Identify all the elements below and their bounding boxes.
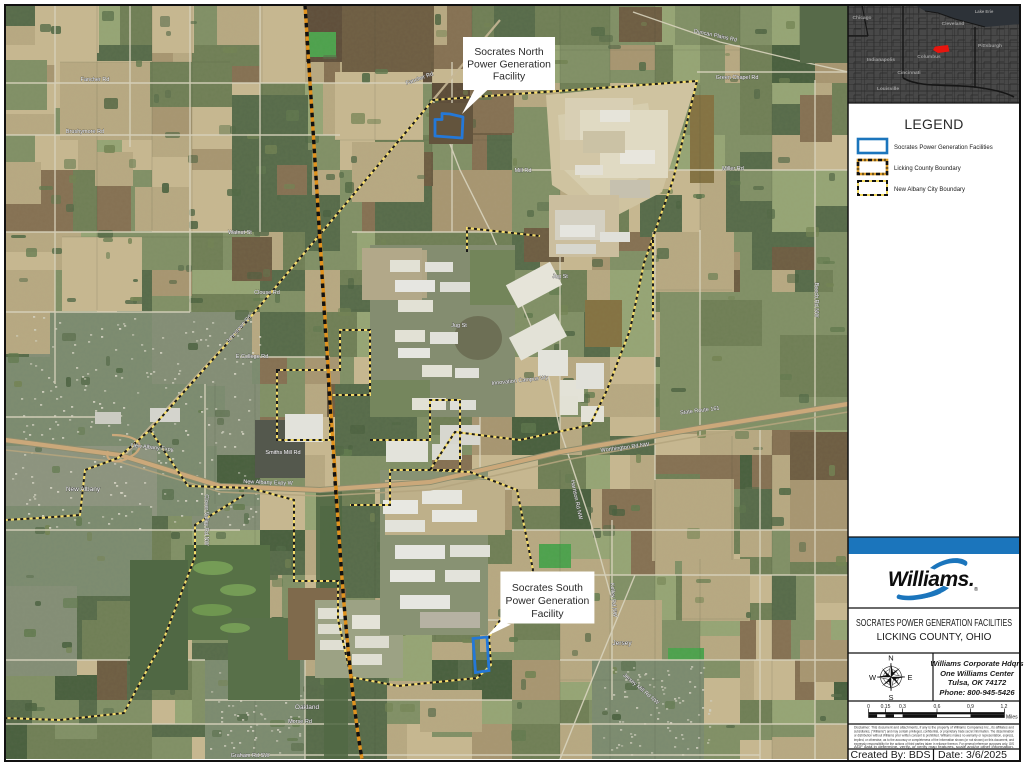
svg-text:E: E [907,673,912,682]
svg-text:Beech Rd NW: Beech Rd NW [813,283,819,319]
svg-text:Smiths Mill Rd: Smiths Mill Rd [265,450,300,456]
svg-text:Chicago: Chicago [853,15,872,21]
svg-text:Pittsburgh: Pittsburgh [978,43,1002,49]
svg-text:Facility: Facility [531,609,564,620]
svg-text:Licking County Boundary: Licking County Boundary [894,166,961,172]
svg-text:N: N [888,654,893,663]
svg-text:Morse Rd: Morse Rd [288,719,312,725]
svg-text:Lake Erie: Lake Erie [975,9,994,14]
svg-text:New Albany: New Albany [66,486,101,493]
svg-text:E College Rd: E College Rd [236,354,268,360]
svg-text:Graham Rd SW: Graham Rd SW [231,753,271,759]
svg-text:Clouse Rd: Clouse Rd [254,290,280,296]
svg-text:Miles: Miles [1006,715,1018,721]
svg-text:Socrates North: Socrates North [474,47,544,58]
svg-text:Williams Corporate Hdqrs: Williams Corporate Hdqrs [930,659,1023,668]
svg-text:Jug St: Jug St [451,323,467,329]
svg-text:Facility: Facility [493,72,526,83]
svg-text:LICKING COUNTY, OHIO: LICKING COUNTY, OHIO [877,632,992,643]
svg-text:Brushymore Rd: Brushymore Rd [66,129,104,135]
svg-text:Clover Valley Rd NW: Clover Valley Rd NW [203,494,209,546]
svg-text:W: W [869,673,877,682]
svg-text:Jersey: Jersey [612,640,632,647]
svg-text:Miller Rd: Miller Rd [722,166,744,172]
svg-text:LEGEND: LEGEND [904,116,963,132]
svg-text:Power Generation: Power Generation [467,59,551,70]
svg-text:®: ® [974,586,978,593]
svg-text:SOCRATES POWER GENERATION FACI: SOCRATES POWER GENERATION FACILITIES [856,618,1012,629]
svg-text:Jug St: Jug St [552,274,568,280]
svg-text:One Williams Center: One Williams Center [940,669,1015,678]
svg-text:New Albany City Boundary: New Albany City Boundary [894,187,965,193]
svg-text:Created By: BDS: Created By: BDS [851,749,931,761]
svg-text:Fancher Rd: Fancher Rd [81,77,110,83]
svg-text:Phone: 800-945-5426: Phone: 800-945-5426 [939,688,1015,697]
svg-text:Socrates South: Socrates South [512,583,583,594]
svg-text:Date: 3/6/2025: Date: 3/6/2025 [938,749,1007,761]
svg-text:Indianapolis: Indianapolis [867,57,895,63]
svg-text:Power Generation: Power Generation [506,596,590,607]
svg-text:Cincinnati: Cincinnati [897,70,920,76]
svg-text:Tulsa, OK 74172: Tulsa, OK 74172 [948,678,1007,687]
svg-text:Cleveland: Cleveland [942,21,965,27]
svg-text:Columbus: Columbus [917,54,941,60]
svg-text:Oakland: Oakland [295,704,320,711]
svg-text:Walnut St: Walnut St [228,230,252,236]
svg-text:Socrates Power Generation Faci: Socrates Power Generation Facilities [894,145,993,151]
svg-text:Mill Rd: Mill Rd [515,168,532,174]
svg-text:Green Chapel Rd: Green Chapel Rd [716,75,759,81]
svg-text:Williams.: Williams. [888,568,974,591]
svg-text:Louisville: Louisville [877,86,899,92]
